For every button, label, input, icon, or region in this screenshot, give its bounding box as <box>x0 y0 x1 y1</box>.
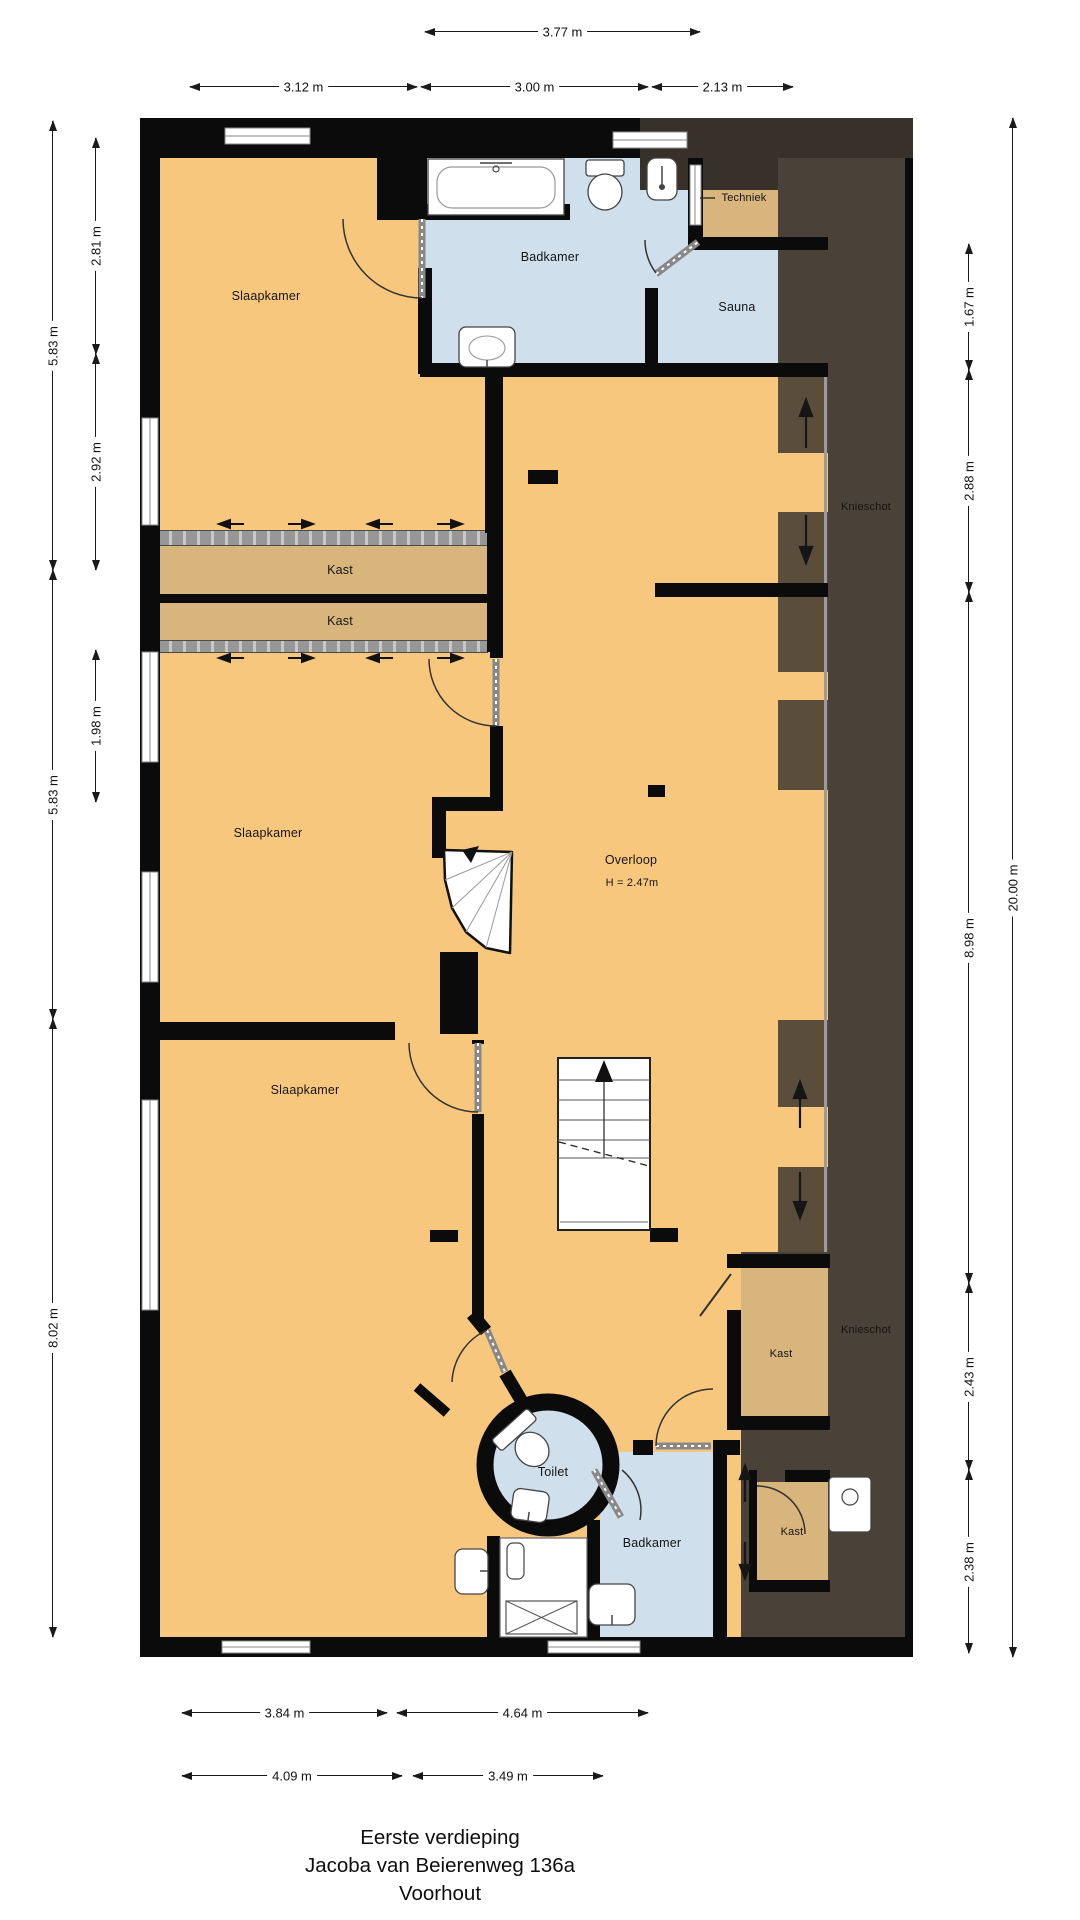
dimension-right: 1.67 m <box>968 244 969 370</box>
window-icon <box>142 128 701 1653</box>
dimension-bottom: 4.64 m <box>397 1712 648 1713</box>
room-label-sauna: Sauna <box>718 300 755 314</box>
dimension-left: 1.98 m <box>95 650 96 802</box>
room-label-overloop-height: H = 2.47m <box>606 877 659 889</box>
dimension-right: 2.38 m <box>968 1470 969 1653</box>
dimension-right-total: 20.00 m <box>1012 118 1013 1657</box>
sliding-arrow-icon <box>219 520 462 662</box>
plan-address: Jacoba van Beierenweg 136a <box>190 1852 690 1880</box>
dimension-right: 8.98 m <box>968 592 969 1283</box>
shower-icon <box>500 1538 587 1637</box>
roof-slope-arrow-icon <box>740 400 812 1578</box>
boiler-icon <box>829 1477 871 1532</box>
door-toilet-slaapkamer <box>452 1330 505 1382</box>
spiral-stairs-icon <box>444 846 512 953</box>
washbasin-icon <box>455 1549 488 1594</box>
room-label-slaapkamer-mid: Slaapkamer <box>234 826 303 840</box>
dimension-bottom: 3.49 m <box>413 1775 603 1776</box>
washbasin-icon <box>589 1584 635 1625</box>
sauna-door <box>645 240 698 274</box>
dimension-top: 3.12 m <box>190 86 417 87</box>
dimension-bottom: 3.84 m <box>182 1712 387 1713</box>
door-kast-c <box>700 1274 731 1316</box>
toilet-icon <box>586 160 624 210</box>
dimension-bottom: 4.09 m <box>182 1775 402 1776</box>
room-label-kast-c: Kast <box>770 1348 793 1360</box>
room-label-badkamer-bottom: Badkamer <box>623 1536 682 1550</box>
room-label-badkamer-top: Badkamer <box>521 250 580 264</box>
room-label-techniek: Techniek <box>721 192 766 204</box>
room-label-slaapkamer-top: Slaapkamer <box>232 289 301 303</box>
washbasin-icon <box>459 327 515 367</box>
plan-overlay <box>0 0 1080 1920</box>
stairs-icon <box>558 1058 650 1230</box>
dimension-left: 2.81 m <box>95 138 96 354</box>
room-label-kast-a: Kast <box>327 563 353 577</box>
dimension-top: 3.00 m <box>421 86 648 87</box>
door-slaapkamer-top <box>343 219 422 298</box>
dimension-right: 2.43 m <box>968 1283 969 1470</box>
plan-title: Eerste verdieping <box>190 1824 690 1852</box>
dimension-top: 2.13 m <box>652 86 793 87</box>
fountain-icon <box>647 158 677 200</box>
title-block: Eerste verdieping Jacoba van Beierenweg … <box>190 1824 690 1908</box>
floor-plan: Slaapkamer Badkamer Techniek Sauna Kast … <box>0 0 1080 1920</box>
wall-diagonal <box>417 1387 447 1413</box>
dimension-top: 3.77 m <box>425 31 700 32</box>
bathtub-icon <box>428 159 564 215</box>
dimension-right: 2.88 m <box>968 370 969 592</box>
room-label-knieschot-bottom: Knieschot <box>841 1324 891 1336</box>
room-label-knieschot-top: Knieschot <box>841 501 891 513</box>
dimension-left: 5.83 m <box>52 570 53 1019</box>
dimension-left: 2.92 m <box>95 354 96 570</box>
room-label-slaapkamer-bottom: Slaapkamer <box>271 1083 340 1097</box>
room-label-toilet: Toilet <box>538 1465 568 1479</box>
room-label-kast-d: Kast <box>781 1526 804 1538</box>
room-label-kast-b: Kast <box>327 614 353 628</box>
washbasin-icon <box>510 1488 550 1524</box>
room-label-overloop: Overloop <box>605 853 657 867</box>
dimension-left: 8.02 m <box>52 1019 53 1637</box>
dimension-left: 5.83 m <box>52 121 53 570</box>
door-slaapkamer-mid <box>429 659 496 726</box>
plan-city: Voorhout <box>190 1880 690 1908</box>
door-slaapkamer-bottom <box>409 1043 478 1112</box>
door-badkamer-bottom <box>656 1389 713 1446</box>
